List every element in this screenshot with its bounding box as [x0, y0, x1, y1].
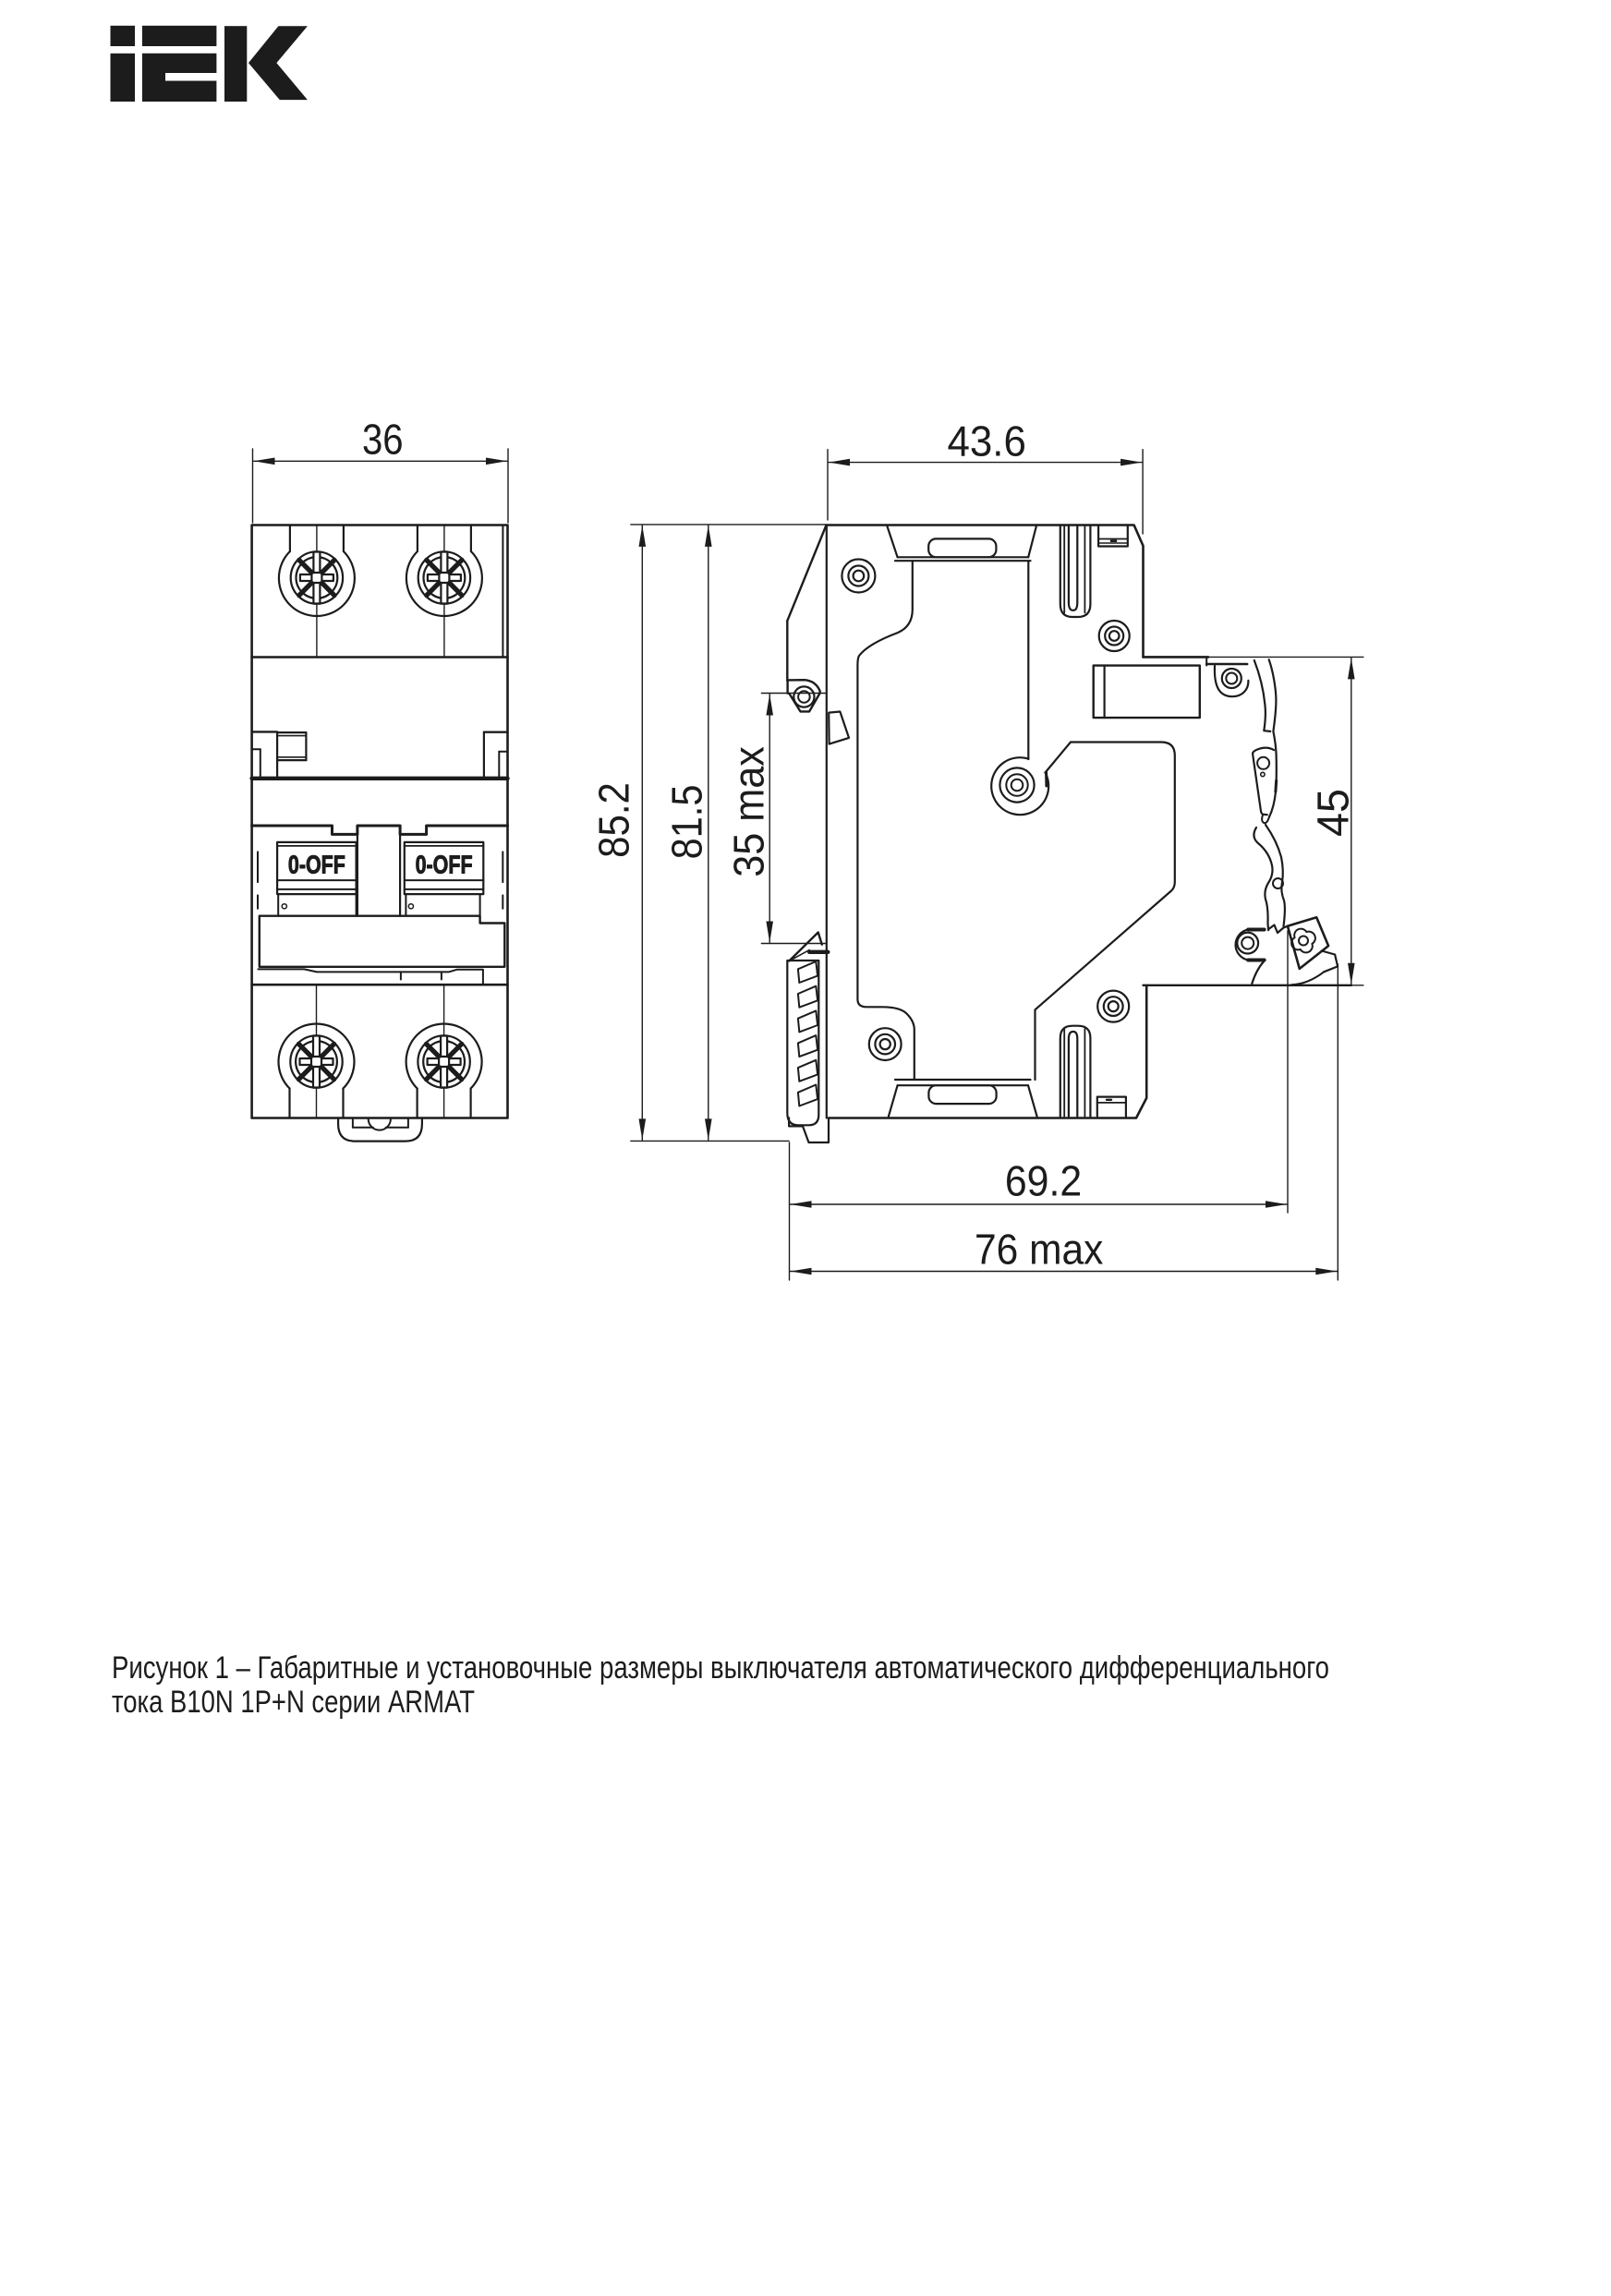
svg-text:0-OFF: 0-OFF	[416, 851, 473, 879]
svg-text:0-OFF: 0-OFF	[288, 851, 345, 879]
svg-text:35 max: 35 max	[725, 746, 773, 877]
svg-text:тока B10N 1P+N серии ARMAT: тока B10N 1P+N серии ARMAT	[112, 1685, 475, 1720]
svg-text:69.2: 69.2	[1005, 1157, 1082, 1205]
svg-text:45: 45	[1310, 789, 1359, 837]
svg-text:43.6: 43.6	[948, 417, 1026, 465]
svg-text:Рисунок 1 – Габаритные и устан: Рисунок 1 – Габаритные и установочные ра…	[112, 1650, 1329, 1686]
svg-text:36: 36	[362, 416, 404, 464]
svg-text:85.2: 85.2	[590, 782, 638, 858]
svg-text:76 max: 76 max	[975, 1225, 1103, 1273]
svg-text:81.5: 81.5	[663, 785, 711, 860]
